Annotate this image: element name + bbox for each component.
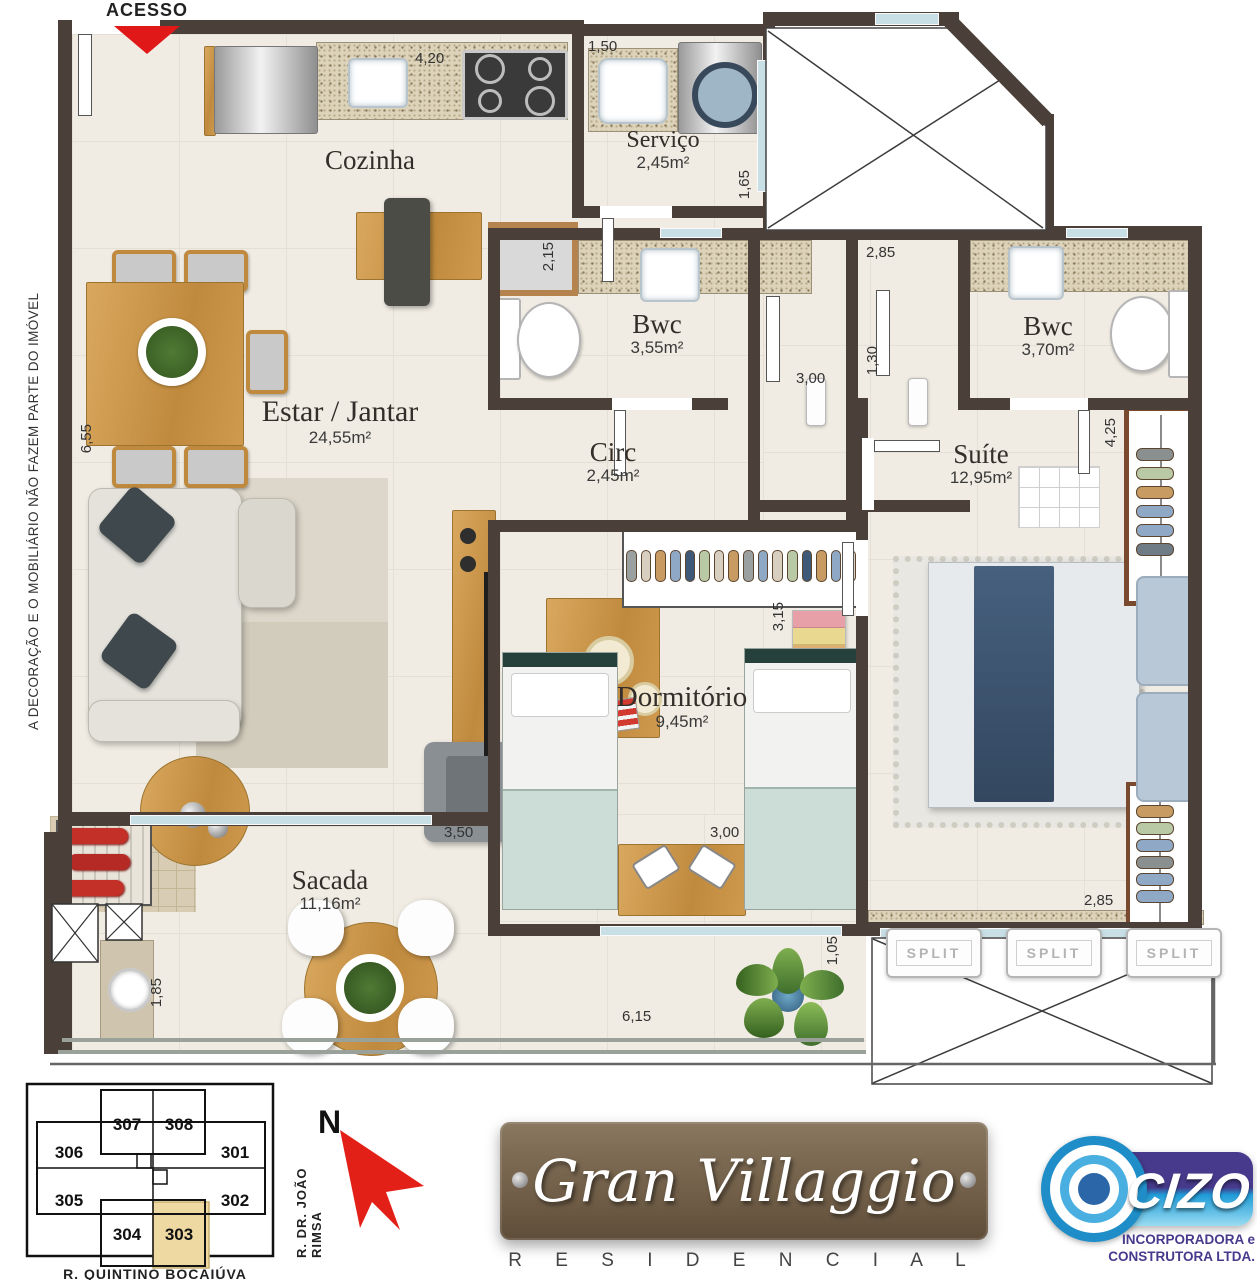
wall-segment	[1040, 114, 1054, 236]
room-label-estar-jantar: Estar / Jantar 24,55m²	[262, 396, 419, 448]
dimension: 3,00	[710, 824, 739, 841]
room-label-suite: Suíte 12,95m²	[950, 440, 1012, 488]
wall-segment	[488, 228, 500, 410]
hanger-icon	[1136, 822, 1174, 835]
balcony-chair	[398, 998, 454, 1054]
hanger-icon	[714, 550, 725, 582]
dimension: 1,30	[864, 346, 881, 375]
wall-segment	[572, 24, 584, 218]
dining-chair	[246, 330, 288, 394]
dining-chair	[112, 446, 176, 488]
wall-segment	[572, 24, 772, 36]
pillow	[753, 669, 851, 713]
hanger-icon	[1136, 543, 1174, 556]
speaker-icon	[460, 556, 476, 572]
hanger-icon	[831, 550, 842, 582]
closet-door-leaf	[766, 296, 780, 382]
hanger-icon	[1136, 805, 1174, 818]
sofa-chaise	[238, 498, 296, 608]
access-label: ACESSO	[106, 0, 188, 21]
keyplan-unit-307: 307	[113, 1115, 141, 1134]
hanger-icon	[655, 550, 666, 582]
burner-icon	[475, 54, 505, 84]
wall-segment	[44, 832, 58, 1054]
project-type: R E S I D E N C I A L	[500, 1250, 988, 1272]
wall-segment	[488, 398, 728, 410]
split-ac-unit: SPLIT	[1006, 928, 1102, 978]
dimension: 1,50	[588, 38, 617, 55]
skewer	[64, 880, 124, 896]
bwc2-door-opening	[1010, 398, 1088, 410]
builder-name: CIZO	[1124, 1162, 1257, 1220]
hanger-icon	[685, 550, 696, 582]
hanger-icon	[699, 550, 710, 582]
screw-icon	[512, 1172, 528, 1188]
burner-icon	[528, 57, 552, 81]
bwc2-window	[1066, 228, 1128, 238]
dimension: 3,15	[770, 602, 787, 631]
room-label-bwc1: Bwc 3,55m²	[631, 310, 684, 358]
suite-bed-throw	[974, 566, 1054, 802]
suite-pillow	[1136, 576, 1194, 686]
round-sink	[108, 968, 152, 1012]
dimension: 1,65	[736, 170, 753, 199]
suite-pillow	[1136, 692, 1194, 802]
shelf-grid	[1018, 466, 1100, 528]
split-ac-unit: SPLIT	[1126, 928, 1222, 978]
servico-door-opening	[600, 206, 672, 218]
bedroom-door-leaf	[842, 542, 854, 616]
shaft-window	[875, 13, 939, 25]
hanger-icon	[802, 550, 813, 582]
hanger-icon	[758, 550, 769, 582]
builder-line2: CONSTRUTORA LTDA.	[1095, 1249, 1255, 1264]
room-label-dormitorio: Dormitório 9,45m²	[617, 682, 748, 732]
room-label-cozinha: Cozinha	[325, 146, 415, 174]
hanger-icon	[1136, 890, 1174, 903]
cooktop	[462, 50, 568, 120]
hanger-icon	[1136, 856, 1174, 869]
blanket	[503, 789, 617, 909]
wall-segment	[160, 20, 584, 34]
bwc1-sink	[640, 248, 700, 302]
hanger-icon	[1136, 524, 1174, 537]
dimension: 2,15	[540, 242, 557, 271]
servico-door-leaf	[602, 218, 614, 282]
keyplan-unit-304: 304	[113, 1225, 142, 1244]
hanger-icon	[1136, 873, 1174, 886]
towel	[793, 628, 845, 645]
hanger-icon	[772, 550, 783, 582]
bwc2-toilet	[1110, 296, 1174, 372]
keyplan-unit-302: 302	[221, 1191, 249, 1210]
wall-segment	[748, 500, 970, 512]
project-name: Gran Villaggio	[532, 1147, 955, 1215]
bwc1-door-opening	[612, 398, 692, 410]
dimension: 1,05	[824, 936, 841, 965]
disclaimer-text: A DECORAÇÃO E O MOBILIÁRIO NÃO FAZEM PAR…	[26, 286, 41, 730]
plant-centerpiece	[146, 326, 198, 378]
bedroom-door-opening	[856, 540, 868, 616]
servico-window	[757, 60, 767, 192]
bwc2-sink	[1008, 246, 1064, 300]
hanger-icon	[1136, 467, 1174, 480]
wall-segment	[58, 20, 72, 1054]
fridge	[214, 46, 318, 134]
floorplan-page: ACESSO A DECORAÇÃO E O MOBILIÁRIO NÃO FA…	[0, 0, 1257, 1280]
dimension: 1,85	[148, 978, 165, 1007]
screw-icon	[960, 1172, 976, 1188]
keyplan-boundary	[27, 1084, 273, 1256]
split-label: SPLIT	[1016, 940, 1093, 966]
hanger-icon	[1136, 448, 1174, 461]
bwc1-window	[660, 228, 722, 238]
bwc1-toilet	[517, 302, 581, 378]
hanger-icon	[816, 550, 827, 582]
speaker-icon	[460, 528, 476, 544]
suite-door-leaf	[874, 440, 940, 452]
single-bed	[744, 648, 860, 910]
skewer	[64, 828, 128, 844]
room-label-sacada: Sacada 11,16m²	[292, 866, 368, 914]
dimension: 4,20	[415, 50, 444, 67]
split-ac-unit: SPLIT	[886, 928, 982, 978]
wall-segment	[488, 520, 500, 936]
keyplan-unit-303: 303	[165, 1225, 193, 1244]
keyplan: 306 307 308 301 305 304 303 302	[25, 1082, 280, 1280]
burner-icon	[525, 86, 555, 116]
dimension: 4,25	[1102, 418, 1119, 447]
room-label-servico: Serviço 2,45m²	[626, 128, 699, 173]
project-sign: Gran Villaggio	[500, 1122, 988, 1240]
bwc2-door-leaf	[1078, 410, 1090, 474]
dimension: 6,15	[622, 1008, 651, 1025]
skewer	[68, 854, 130, 870]
bwc2-counter	[970, 240, 1190, 292]
airshaft-top	[766, 28, 1046, 230]
headboard	[745, 649, 859, 663]
north-arrow-icon	[334, 1128, 434, 1238]
washer-door-icon	[692, 62, 758, 128]
hanger-icon	[743, 550, 754, 582]
living-balcony-window	[130, 815, 432, 825]
keyplan-unit-301: 301	[221, 1143, 249, 1162]
split-label: SPLIT	[1136, 940, 1213, 966]
chamfer-wall	[949, 20, 1048, 121]
dimension: 6,55	[78, 424, 95, 453]
hanger-icon	[787, 550, 798, 582]
street-label-bottom: R. QUINTINO BOCAIÚVA	[30, 1266, 280, 1280]
towel	[793, 611, 845, 628]
keyplan-unit-305: 305	[55, 1191, 83, 1210]
wall-segment	[958, 228, 970, 410]
balcony-chair	[282, 998, 338, 1054]
split-label: SPLIT	[896, 940, 973, 966]
builder-line1: INCORPORADORA e	[1095, 1232, 1255, 1247]
shaft-fixture	[908, 378, 928, 426]
keyplan-unit-308: 308	[165, 1115, 193, 1134]
single-bed	[502, 652, 618, 910]
hanger-icon	[1136, 839, 1174, 852]
bedroom-window	[600, 926, 842, 936]
entry-door-leaf	[78, 34, 92, 116]
dimension: 2,85	[866, 244, 895, 261]
laundry-tank	[598, 58, 668, 124]
access-arrow-icon	[114, 26, 180, 54]
headboard	[503, 653, 617, 667]
dimension: 3,00	[796, 370, 825, 387]
builder-logo: CIZO INCORPORADORA e CONSTRUTORA LTDA.	[1035, 1128, 1257, 1268]
kitchen-bench	[384, 198, 430, 306]
wall-segment	[488, 520, 868, 532]
blanket	[745, 787, 859, 909]
dining-chair	[184, 446, 248, 488]
keyplan-unit-306: 306	[55, 1143, 83, 1162]
pillow	[511, 673, 609, 717]
burner-icon	[478, 89, 502, 113]
sofa-arm	[88, 700, 240, 742]
wall-segment	[1188, 226, 1202, 938]
balcony-chair	[398, 900, 454, 956]
balcony-plant	[344, 962, 396, 1014]
suite-door-opening	[862, 438, 874, 510]
hanger-icon	[1136, 505, 1174, 518]
room-label-bwc2: Bwc 3,70m²	[1022, 312, 1075, 360]
dimension: 2,85	[1084, 892, 1113, 909]
hanger-icon	[670, 550, 681, 582]
hanger-icon	[626, 550, 637, 582]
dimension: 3,50	[444, 824, 473, 841]
wall-segment	[748, 228, 760, 522]
hanger-icon	[641, 550, 652, 582]
hanger-icon	[1136, 486, 1174, 499]
logo-ring-icon	[1078, 1173, 1110, 1205]
hanger-icon	[728, 550, 739, 582]
room-label-circ: Circ 2,45m²	[587, 438, 640, 486]
kitchen-sink	[348, 58, 408, 108]
